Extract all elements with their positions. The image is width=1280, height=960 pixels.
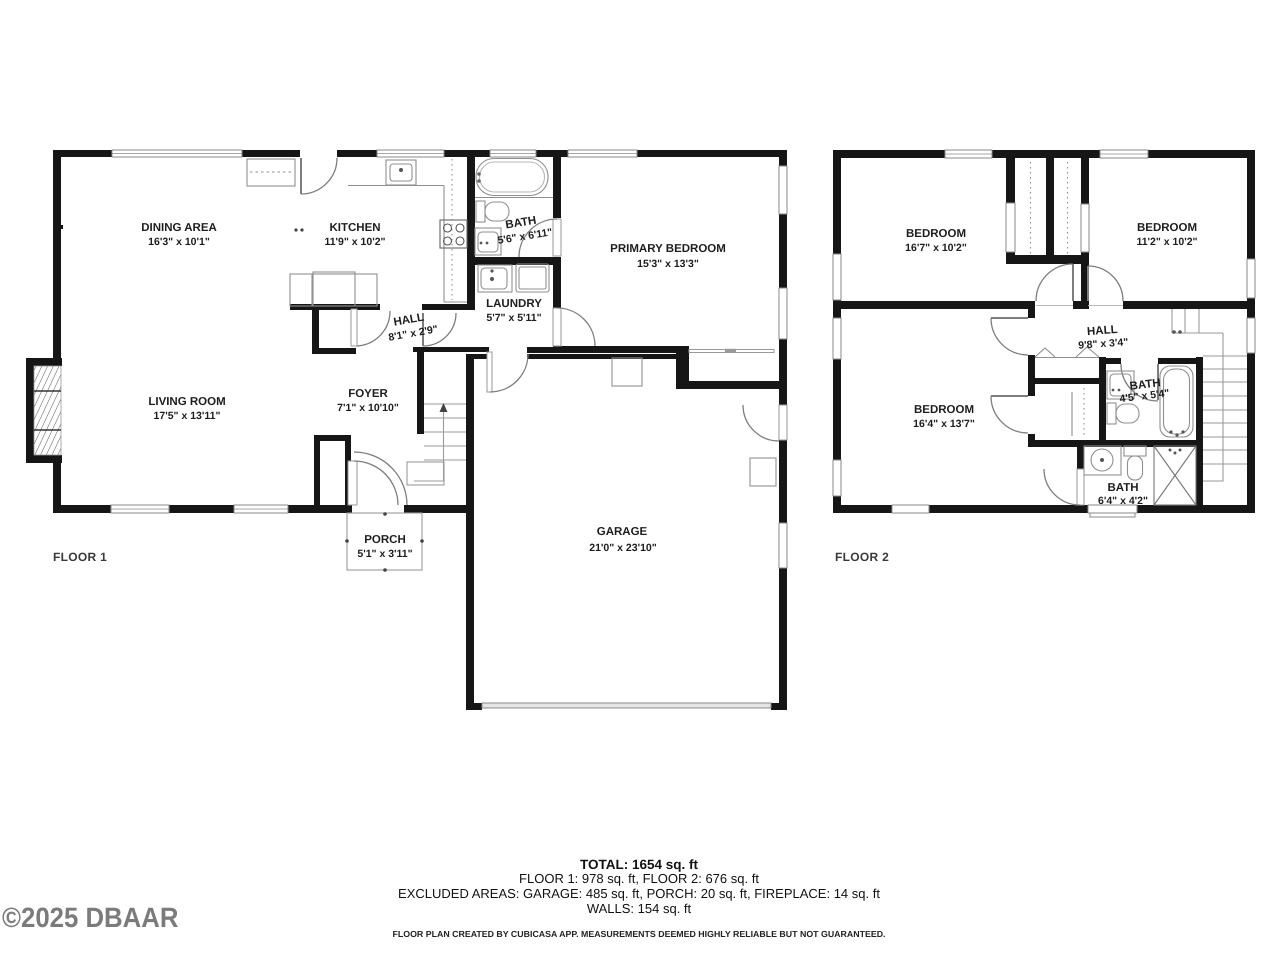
svg-text:11'2" x 10'2": 11'2" x 10'2" [1136,236,1197,248]
svg-text:©2025 DBAAR: ©2025 DBAAR [2,902,178,933]
svg-text:KITCHEN: KITCHEN [329,222,380,234]
svg-text:5'1" x 3'11": 5'1" x 3'11" [357,548,412,560]
svg-text:21'0" x 23'10": 21'0" x 23'10" [589,542,657,554]
svg-text:BEDROOM: BEDROOM [914,404,974,416]
svg-text:WALLS: 154 sq. ft: WALLS: 154 sq. ft [587,901,692,916]
svg-text:PORCH: PORCH [364,534,406,546]
svg-text:EXCLUDED AREAS: GARAGE: 485 sq: EXCLUDED AREAS: GARAGE: 485 sq. ft, PORC… [398,886,880,901]
svg-text:GARAGE: GARAGE [597,526,648,538]
svg-text:BEDROOM: BEDROOM [906,228,966,240]
svg-text:16'7" x 10'2": 16'7" x 10'2" [905,242,967,254]
svg-text:FLOOR 1: 978 sq. ft, FLOOR 2:: FLOOR 1: 978 sq. ft, FLOOR 2: 676 sq. ft [519,871,759,886]
svg-text:FLOOR 2: FLOOR 2 [835,550,889,564]
svg-text:16'3" x 10'1": 16'3" x 10'1" [148,236,210,248]
svg-text:FLOOR PLAN CREATED BY CUBICASA: FLOOR PLAN CREATED BY CUBICASA APP. MEAS… [393,929,886,939]
svg-text:11'9" x 10'2": 11'9" x 10'2" [324,236,385,248]
svg-text:5'7" x 5'11": 5'7" x 5'11" [486,312,541,324]
svg-text:BATH: BATH [1107,482,1138,494]
svg-text:7'1" x 10'10": 7'1" x 10'10" [337,402,399,414]
svg-text:15'3" x 13'3": 15'3" x 13'3" [637,258,699,270]
svg-text:TOTAL: 1654 sq. ft: TOTAL: 1654 sq. ft [580,857,699,872]
svg-text:16'4" x 13'7": 16'4" x 13'7" [913,418,975,430]
svg-text:FLOOR 1: FLOOR 1 [53,550,107,564]
svg-text:PRIMARY BEDROOM: PRIMARY BEDROOM [610,243,726,255]
svg-text:BEDROOM: BEDROOM [1137,222,1197,234]
svg-text:HALL: HALL [1087,324,1118,338]
svg-text:6'4" x 4'2": 6'4" x 4'2" [1098,495,1148,507]
svg-text:FOYER: FOYER [348,388,388,400]
svg-text:DINING AREA: DINING AREA [141,222,217,234]
svg-text:17'5" x 13'11": 17'5" x 13'11" [154,410,221,422]
svg-text:LIVING ROOM: LIVING ROOM [148,396,225,408]
svg-text:LAUNDRY: LAUNDRY [486,298,542,310]
